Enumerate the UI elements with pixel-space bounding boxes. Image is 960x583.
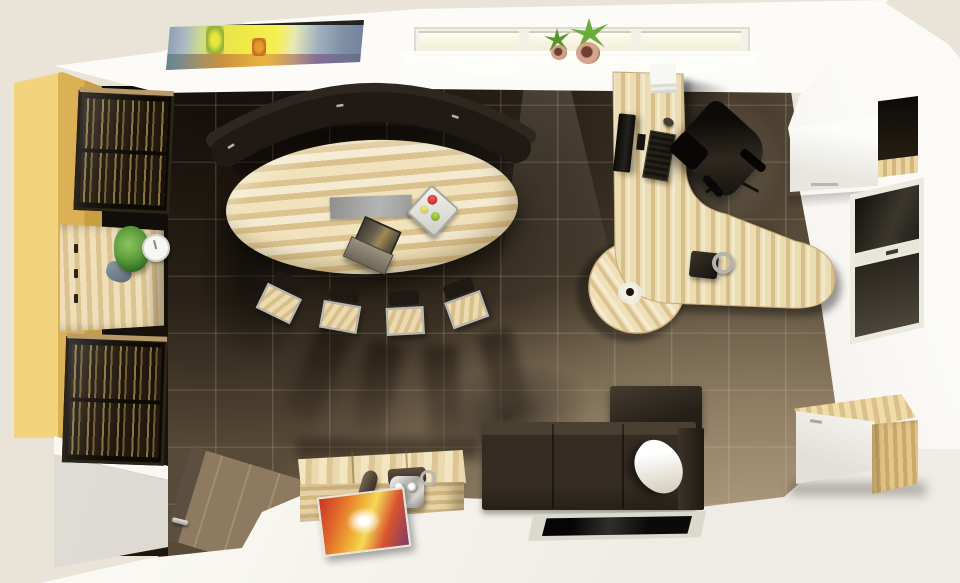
- phone-handset: [712, 252, 734, 274]
- sofa-cushion-seam: [622, 424, 624, 508]
- grinder-dial: [407, 482, 418, 493]
- office-render: [0, 0, 960, 583]
- table-inlay: [330, 195, 413, 220]
- chair-seat: [386, 306, 425, 336]
- coffee: [626, 288, 634, 296]
- drawer-handle: [74, 294, 78, 303]
- guest-chair: [319, 292, 362, 332]
- magazine: [317, 487, 412, 557]
- coffee-table-glass: [542, 516, 692, 536]
- sofa-cushion-seam: [552, 424, 554, 508]
- fruit-green: [429, 210, 442, 223]
- fruit-red: [425, 193, 439, 207]
- fruit-yellow: [418, 204, 430, 216]
- lower-bookcase: [62, 336, 168, 465]
- sideboard-wood-side: [872, 420, 918, 494]
- paper-stack: [649, 63, 676, 84]
- monitor-stand: [636, 134, 646, 151]
- chair-back: [389, 290, 420, 306]
- glass-door-reflection: [77, 93, 172, 211]
- drawer-handle: [74, 269, 78, 278]
- upper-bookcase: [73, 90, 174, 214]
- guest-chair: [385, 298, 425, 334]
- grinder-crank: [420, 470, 436, 486]
- glass-door-reflection: [65, 339, 165, 462]
- drawer-handle: [74, 244, 78, 253]
